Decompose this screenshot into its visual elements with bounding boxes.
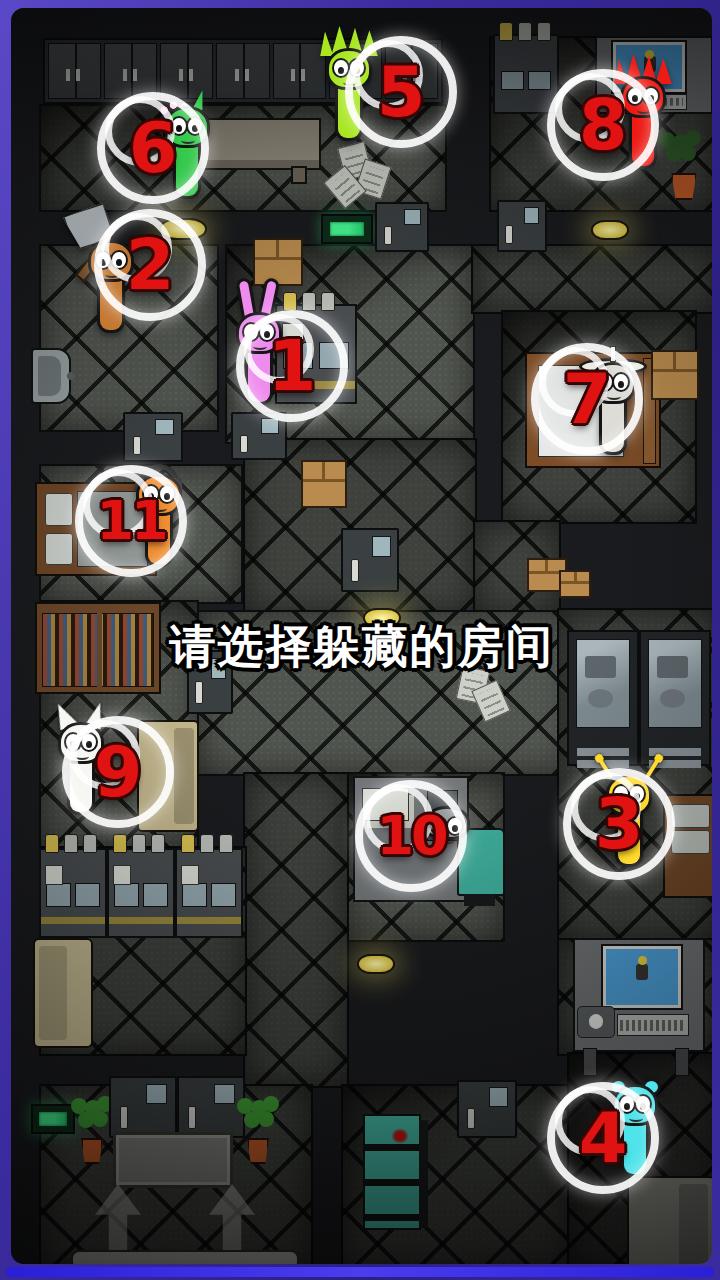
doormat — [113, 1132, 233, 1188]
cardboard-box — [559, 570, 591, 598]
room-marker-7[interactable]: 7 — [531, 343, 643, 455]
bottle — [537, 22, 551, 41]
plant-leaves — [237, 1098, 253, 1114]
room-marker-11[interactable]: 11 — [75, 465, 187, 577]
cardboard-box — [651, 350, 699, 400]
room-marker-9[interactable]: 9 — [62, 716, 174, 828]
wall-sink — [31, 348, 71, 404]
room-number: 6 — [97, 92, 209, 204]
monitor-screen — [606, 949, 678, 1005]
pillow — [45, 493, 73, 526]
bottles — [499, 22, 551, 41]
plant-leaves — [71, 1098, 87, 1114]
desk-leg — [583, 1048, 597, 1076]
bottle — [283, 292, 297, 311]
bottles — [45, 834, 97, 853]
entrance-door — [109, 1076, 177, 1138]
door — [341, 528, 399, 592]
room-marker-4[interactable]: 4 — [547, 1082, 659, 1194]
room-number: 11 — [75, 465, 187, 577]
plant-pot — [81, 1138, 103, 1164]
bottle — [518, 22, 532, 41]
lab-counter — [175, 848, 243, 938]
locker — [273, 43, 326, 99]
door — [375, 202, 429, 252]
room-number: 2 — [94, 209, 206, 321]
locker — [160, 43, 213, 99]
room-number: 1 — [236, 310, 348, 422]
room-marker-2[interactable]: 2 — [94, 209, 206, 321]
ceiling-lamp-icon — [591, 220, 629, 240]
lab-counter — [39, 848, 107, 938]
room-number: 3 — [563, 768, 675, 880]
room-number: 8 — [547, 69, 659, 181]
room-number: 9 — [62, 716, 174, 828]
room-marker-5[interactable]: 5 — [345, 36, 457, 148]
bottles — [113, 834, 165, 853]
potted-plant — [233, 1098, 279, 1164]
room-number: 7 — [531, 343, 643, 455]
plant-pot — [247, 1138, 269, 1164]
game-screen: 请选择躲藏的房间 1234567891011 — [0, 0, 720, 1280]
blood-stain — [391, 1128, 409, 1144]
cardboard-box — [253, 238, 303, 286]
room-marker-8[interactable]: 8 — [547, 69, 659, 181]
bottle — [302, 292, 316, 311]
ceiling-lamp-icon — [357, 954, 395, 974]
exit-sign-icon — [321, 214, 373, 244]
prompt-text: 请选择躲藏的房间 — [11, 616, 712, 678]
bottle — [321, 292, 335, 311]
bottles — [181, 834, 233, 853]
map: 请选择躲藏的房间 1234567891011 — [11, 8, 712, 1264]
locker — [48, 43, 101, 99]
couch — [33, 938, 93, 1048]
pillow — [671, 830, 709, 854]
room-marker-3[interactable]: 3 — [563, 768, 675, 880]
plant-pot — [671, 173, 697, 200]
room-number: 5 — [345, 36, 457, 148]
table-leg — [291, 166, 307, 184]
locker — [104, 43, 157, 99]
door — [497, 200, 547, 252]
door — [123, 412, 183, 462]
potted-plant — [67, 1098, 113, 1164]
room-marker-1[interactable]: 1 — [236, 310, 348, 422]
room-marker-6[interactable]: 6 — [97, 92, 209, 204]
bottle — [499, 22, 513, 41]
room-number: 10 — [355, 780, 467, 892]
room-number: 4 — [547, 1082, 659, 1194]
mouse-pad — [577, 1006, 615, 1038]
locker — [216, 43, 269, 99]
lab-counter — [107, 848, 175, 938]
bottles — [283, 292, 335, 311]
desk-leg — [675, 1048, 689, 1076]
corridor-floor — [471, 244, 712, 314]
bottom-glow-bar — [6, 1267, 714, 1277]
room-marker-10[interactable]: 10 — [355, 780, 467, 892]
door — [457, 1080, 517, 1138]
computer-monitor — [601, 944, 683, 1010]
pillow — [671, 804, 709, 828]
cardboard-box — [301, 460, 347, 508]
keyboard — [617, 1014, 689, 1036]
corridor-floor — [243, 772, 349, 1088]
pillow — [45, 533, 73, 566]
entrance-threshold — [71, 1250, 299, 1264]
